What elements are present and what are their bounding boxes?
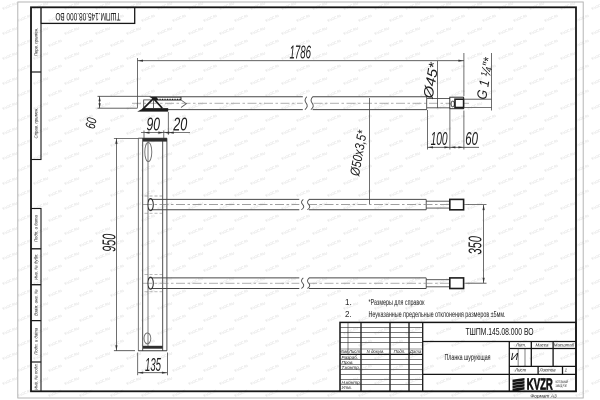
svg-text:Подп.: Подп. — [394, 349, 406, 354]
svg-text:20: 20 — [173, 114, 188, 134]
svg-text:2.: 2. — [345, 310, 352, 319]
svg-text:Т.контр.: Т.контр. — [342, 365, 361, 370]
svg-text:ЗАВОД РЭП: ЗАВОД РЭП — [556, 384, 568, 388]
svg-text:Планка шурующая: Планка шурующая — [445, 353, 491, 362]
svg-text:Инв. № дубл.: Инв. № дубл. — [34, 253, 39, 279]
svg-text:Изм.: Изм. — [339, 349, 348, 354]
svg-text:Справ. примен.: Справ. примен. — [34, 108, 39, 139]
svg-text:1786: 1786 — [290, 42, 312, 62]
svg-text:950: 950 — [100, 234, 120, 252]
svg-text:135: 135 — [145, 355, 162, 375]
svg-text:Лист: Лист — [514, 368, 527, 373]
svg-text:Подп. и дата: Подп. и дата — [34, 327, 39, 355]
svg-text:Формат А3: Формат А3 — [530, 393, 557, 399]
svg-text:60: 60 — [465, 129, 478, 149]
svg-text:N докум.: N докум. — [367, 349, 385, 354]
svg-text:Неуказанные предельные отклоне: Неуказанные предельные отклонения размер… — [369, 310, 506, 319]
svg-text:Лит.: Лит. — [515, 343, 526, 348]
svg-text:100: 100 — [431, 129, 448, 149]
svg-text:Утв.: Утв. — [342, 385, 352, 390]
svg-text:*Размеры для справок: *Размеры для справок — [369, 298, 425, 307]
svg-text:90: 90 — [146, 114, 160, 134]
svg-text:Подп. и дата: Подп. и дата — [34, 215, 39, 243]
svg-text:Инв. № подл.: Инв. № подл. — [34, 363, 39, 390]
svg-text:Масса: Масса — [536, 343, 550, 348]
svg-text:Масштаб: Масштаб — [554, 343, 575, 348]
svg-text:KVZR: KVZR — [527, 376, 553, 393]
svg-text:350: 350 — [466, 236, 486, 255]
svg-text:ТШПМ.145.08.000 ВО: ТШПМ.145.08.000 ВО — [55, 10, 120, 22]
svg-text:Перв. примен.: Перв. примен. — [34, 28, 39, 57]
svg-text:Лист: Лист — [348, 349, 361, 354]
svg-text:И: И — [511, 351, 519, 363]
svg-text:1.: 1. — [345, 298, 352, 307]
svg-text:ТШПМ.145.08.000 ВО: ТШПМ.145.08.000 ВО — [466, 326, 534, 338]
svg-text:Дата: Дата — [409, 349, 422, 354]
svg-text:Листов: Листов — [539, 368, 557, 373]
svg-text:Взам. инв. №: Взам. инв. № — [34, 289, 39, 316]
